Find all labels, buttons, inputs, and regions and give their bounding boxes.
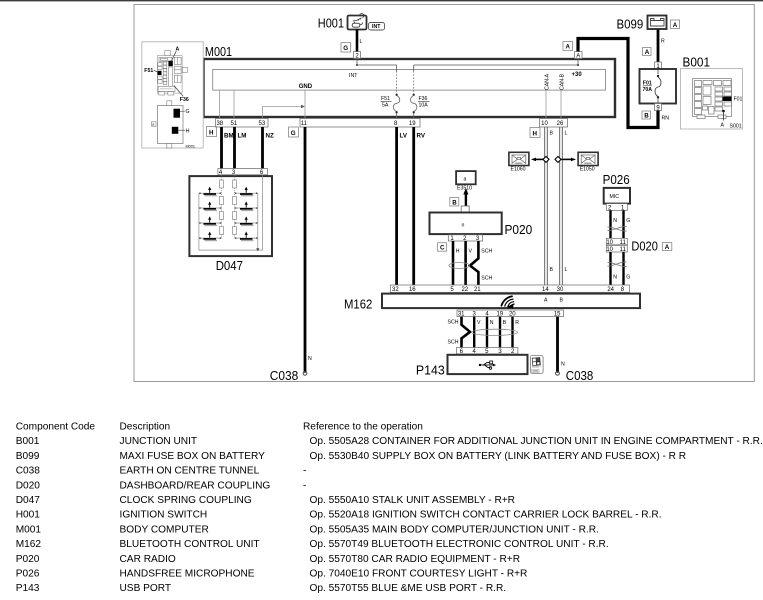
svg-text:A: A: [566, 44, 571, 51]
svg-text:G: G: [626, 275, 630, 281]
svg-text:M001: M001: [186, 145, 196, 149]
svg-text:F51: F51: [381, 96, 390, 102]
svg-text:Op. 7040E10 FRONT COURTESY LIG: Op. 7040E10 FRONT COURTESY LIGHT - R+R: [310, 569, 528, 580]
svg-text:B001: B001: [683, 55, 711, 70]
svg-text:C038: C038: [16, 466, 41, 477]
svg-text:GND: GND: [299, 84, 313, 90]
svg-text:11: 11: [301, 121, 308, 127]
svg-text:21: 21: [474, 287, 481, 293]
svg-text:P143: P143: [16, 583, 40, 594]
svg-text:B099: B099: [617, 16, 644, 31]
svg-text:B: B: [452, 199, 457, 206]
svg-text:SCH: SCH: [448, 319, 459, 325]
svg-text:G: G: [626, 218, 630, 224]
svg-text:LV: LV: [400, 133, 408, 140]
svg-text:22: 22: [461, 287, 468, 293]
svg-text:N: N: [613, 275, 617, 281]
svg-text:D020: D020: [631, 238, 658, 253]
svg-text:CLOCK SPRING COUPLING: CLOCK SPRING COUPLING: [120, 495, 252, 506]
svg-text:-: -: [303, 466, 306, 477]
svg-text:USB PORT: USB PORT: [120, 583, 172, 594]
svg-text:A: A: [645, 49, 650, 56]
svg-text:R: R: [515, 320, 519, 326]
svg-text:BODY COMPUTER: BODY COMPUTER: [120, 524, 209, 535]
svg-text:M162: M162: [344, 296, 372, 311]
svg-text:N: N: [308, 356, 312, 362]
svg-text:P026: P026: [16, 569, 40, 580]
svg-text:A: A: [576, 53, 580, 59]
svg-text:DASHBOARD/REAR COUPLING: DASHBOARD/REAR COUPLING: [120, 480, 271, 491]
svg-text:LM: LM: [238, 133, 247, 140]
svg-text:V: V: [477, 320, 481, 326]
svg-text:IGNITION SWITCH: IGNITION SWITCH: [120, 510, 208, 521]
svg-text:L: L: [565, 267, 568, 273]
svg-text:NZ: NZ: [266, 133, 274, 140]
svg-text:H: H: [456, 249, 460, 255]
svg-text:G: G: [186, 109, 190, 115]
svg-text:Op. 5520A18 IGNITION SWITCH CO: Op. 5520A18 IGNITION SWITCH CONTACT CARR…: [310, 510, 662, 521]
svg-text:5A: 5A: [382, 103, 389, 109]
svg-text:E1060: E1060: [511, 167, 526, 173]
svg-text:C038: C038: [270, 368, 299, 383]
svg-text:Op. 5505A35 MAIN BODY COMPUTER: Op. 5505A35 MAIN BODY COMPUTER/JUNCTION …: [310, 524, 599, 535]
svg-text:11: 11: [620, 240, 627, 246]
svg-text:A: A: [665, 244, 670, 251]
svg-text:SCH: SCH: [481, 276, 492, 282]
svg-text:H: H: [533, 130, 538, 137]
svg-text:53: 53: [259, 121, 266, 127]
svg-text:14: 14: [542, 287, 549, 293]
svg-text:P020: P020: [16, 554, 40, 565]
svg-text:38: 38: [216, 121, 223, 127]
svg-text:HANDSFREE MICROPHONE: HANDSFREE MICROPHONE: [120, 569, 255, 580]
svg-text:Op. 5505A28 CONTAINER FOR ADDI: Op. 5505A28 CONTAINER FOR ADDITIONAL JUN…: [310, 436, 763, 447]
svg-text:Reference to the operation: Reference to the operation: [303, 422, 423, 433]
svg-text:Op. 5570T49 BLUETOOTH ELECTRON: Op. 5570T49 BLUETOOTH ELECTRONIC CONTROL…: [310, 539, 609, 550]
svg-text:RN: RN: [662, 116, 670, 122]
svg-text:F01: F01: [734, 97, 743, 103]
svg-text:M001: M001: [205, 44, 232, 59]
svg-text:B: B: [550, 131, 554, 137]
svg-text:24: 24: [607, 287, 614, 293]
svg-text:P020: P020: [505, 222, 533, 237]
svg-text:B: B: [503, 320, 507, 326]
svg-text:G: G: [291, 130, 296, 137]
svg-text:BLUETOOTH CONTROL UNIT: BLUETOOTH CONTROL UNIT: [120, 539, 260, 550]
svg-text:MIC: MIC: [610, 194, 620, 200]
svg-text:32: 32: [392, 287, 399, 293]
svg-text:n: n: [462, 223, 465, 229]
svg-text:B: B: [560, 298, 564, 304]
svg-text:Component Code: Component Code: [16, 422, 96, 433]
svg-text:Op. 5570T55 BLUE &ME USB PORT: Op. 5570T55 BLUE &ME USB PORT - R.R.: [310, 583, 507, 594]
svg-text:F51: F51: [144, 68, 153, 74]
svg-text:N: N: [561, 362, 565, 368]
svg-text:M001: M001: [16, 524, 42, 535]
svg-text:G: G: [343, 45, 348, 52]
svg-text:JUNCTION UNIT: JUNCTION UNIT: [120, 436, 198, 447]
svg-text:10: 10: [541, 121, 548, 127]
svg-text:D047: D047: [216, 258, 243, 273]
svg-text:RV: RV: [417, 133, 426, 140]
svg-text:Op. 5550A10 STALK UNIT ASSEMBL: Op. 5550A10 STALK UNIT ASSEMBLY - R+R: [310, 495, 516, 506]
svg-text:EARTH ON CENTRE TUNNEL: EARTH ON CENTRE TUNNEL: [120, 466, 260, 477]
svg-text:N: N: [490, 320, 494, 326]
svg-text:S001: S001: [730, 124, 742, 130]
svg-text:a: a: [464, 177, 467, 183]
svg-text:D047: D047: [16, 495, 41, 506]
svg-text:V: V: [469, 249, 473, 255]
svg-text:MAXI FUSE BOX ON BATTERY: MAXI FUSE BOX ON BATTERY: [120, 451, 266, 462]
svg-text:BM: BM: [224, 133, 234, 140]
svg-text:A: A: [673, 22, 678, 29]
svg-text:30: 30: [557, 287, 564, 293]
svg-text:P026: P026: [603, 172, 630, 187]
svg-text:10: 10: [606, 240, 613, 246]
svg-text:INT: INT: [372, 24, 381, 30]
svg-text:Op. 5570T80 CAR RADIO EQUIPMEN: Op. 5570T80 CAR RADIO EQUIPMENT - R+R: [310, 554, 521, 565]
svg-text:N: N: [613, 218, 617, 224]
svg-text:B: B: [550, 267, 554, 273]
svg-text:C038: C038: [566, 368, 594, 383]
svg-text:SCH: SCH: [448, 340, 459, 346]
svg-text:a: a: [152, 123, 154, 127]
svg-text:51: 51: [231, 121, 238, 127]
svg-text:H001: H001: [16, 510, 41, 521]
svg-text:F36: F36: [180, 97, 189, 103]
svg-text:CAR RADIO: CAR RADIO: [120, 554, 176, 565]
svg-text:B: B: [644, 113, 649, 120]
svg-text:Description: Description: [120, 422, 171, 433]
svg-text:L: L: [565, 131, 568, 137]
svg-text:A: A: [544, 298, 548, 304]
svg-text:H001: H001: [318, 16, 344, 31]
svg-text:Op. 5530B40 SUPPLY BOX ON BATT: Op. 5530B40 SUPPLY BOX ON BATTERY (LINK …: [310, 451, 687, 462]
svg-text:M162: M162: [16, 539, 42, 550]
svg-text:INT: INT: [349, 73, 358, 79]
svg-text:CAN-B: CAN-B: [560, 73, 566, 90]
svg-text:D020: D020: [16, 480, 41, 491]
svg-text:CAN-A: CAN-A: [545, 73, 551, 90]
svg-text:H: H: [209, 129, 214, 136]
svg-text:L: L: [360, 39, 363, 45]
svg-text:-: -: [303, 480, 306, 491]
svg-text:E3510: E3510: [457, 186, 472, 192]
svg-text:26: 26: [557, 121, 564, 127]
svg-text:19: 19: [409, 121, 416, 127]
svg-text:B001: B001: [16, 436, 40, 447]
svg-text:P143: P143: [416, 362, 445, 377]
svg-text:10A: 10A: [419, 103, 429, 109]
svg-text:R: R: [661, 39, 665, 45]
svg-text:F36: F36: [419, 96, 428, 102]
svg-text:A: A: [721, 123, 725, 129]
svg-text:SCH: SCH: [481, 249, 492, 255]
svg-text:16: 16: [409, 287, 416, 293]
svg-text:E1050: E1050: [580, 167, 595, 173]
svg-text:H: H: [186, 129, 190, 135]
svg-text:+30: +30: [572, 72, 583, 78]
svg-text:C: C: [440, 245, 445, 252]
svg-text:B099: B099: [16, 451, 40, 462]
svg-text:70A: 70A: [643, 87, 653, 93]
